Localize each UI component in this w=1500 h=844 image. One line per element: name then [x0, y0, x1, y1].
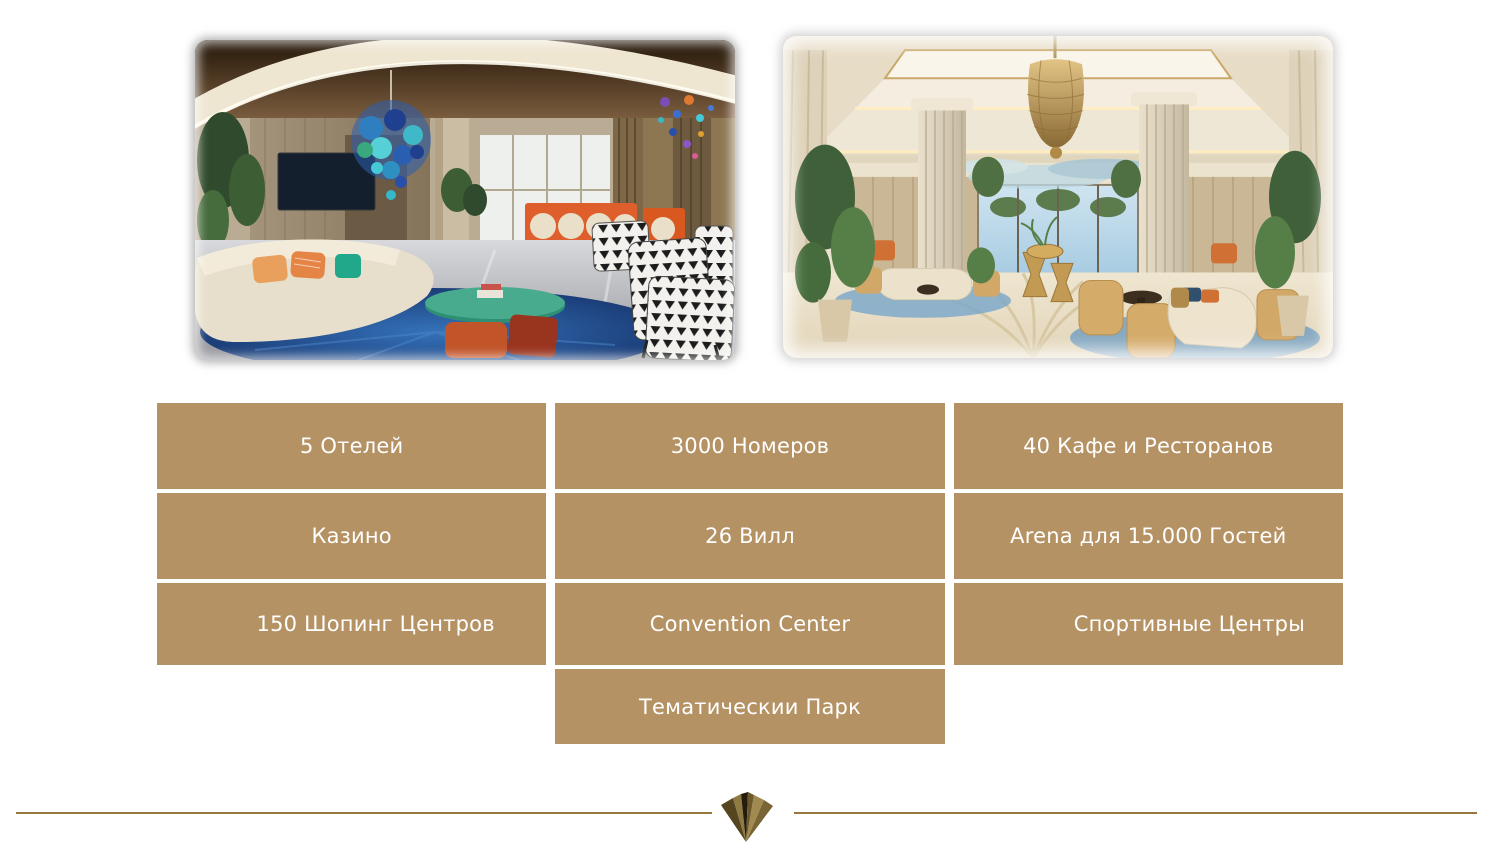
stat-label: Казино: [311, 524, 391, 548]
stat-shopping: 150 Шопинг Центров: [157, 583, 546, 665]
stat-cafes: 40 Кафе и Ресторанов: [954, 403, 1343, 489]
stat-label: 40 Кафе и Ресторанов: [1023, 434, 1273, 458]
stat-arena: Arena для 15.000 Гостей: [954, 493, 1343, 579]
red-ottoman: [507, 314, 558, 358]
grand-lobby-illustration: [783, 36, 1333, 358]
stats-grid: 5 Отелей 3000 Номеров 40 Кафе и Ресторан…: [157, 403, 1343, 744]
divider-line-right: [794, 812, 1477, 814]
lounge-photo: [195, 40, 735, 360]
faceted-emblem-icon: [716, 791, 778, 844]
stat-label: Arena для 15.000 Гостей: [1010, 524, 1286, 548]
stat-hotels: 5 Отелей: [157, 403, 546, 489]
stat-label: Convention Center: [650, 612, 850, 636]
stat-label: 26 Вилл: [705, 524, 795, 548]
orange-pouf: [445, 322, 507, 358]
stat-label: 5 Отелей: [300, 434, 403, 458]
stat-convention: Convention Center: [555, 583, 944, 665]
stat-casino: Казино: [157, 493, 546, 579]
grand-lobby-photo: [783, 36, 1333, 358]
lounge-illustration: [195, 40, 735, 360]
brand-emblem: [716, 791, 778, 844]
stat-villas: 26 Вилл: [555, 493, 944, 579]
divider-line-left: [16, 812, 712, 814]
stat-label: 150 Шопинг Центров: [257, 612, 495, 636]
stat-sports: Спортивные Центры: [954, 583, 1343, 665]
presentation-slide: 5 Отелей 3000 Номеров 40 Кафе и Ресторан…: [0, 0, 1500, 844]
stat-themepark: Тематическии Парк: [555, 669, 944, 744]
stat-label: Тематическии Парк: [639, 695, 861, 719]
stat-label: 3000 Номеров: [671, 434, 829, 458]
stat-rooms: 3000 Номеров: [555, 403, 944, 489]
stat-label: Спортивные Центры: [1074, 612, 1305, 636]
